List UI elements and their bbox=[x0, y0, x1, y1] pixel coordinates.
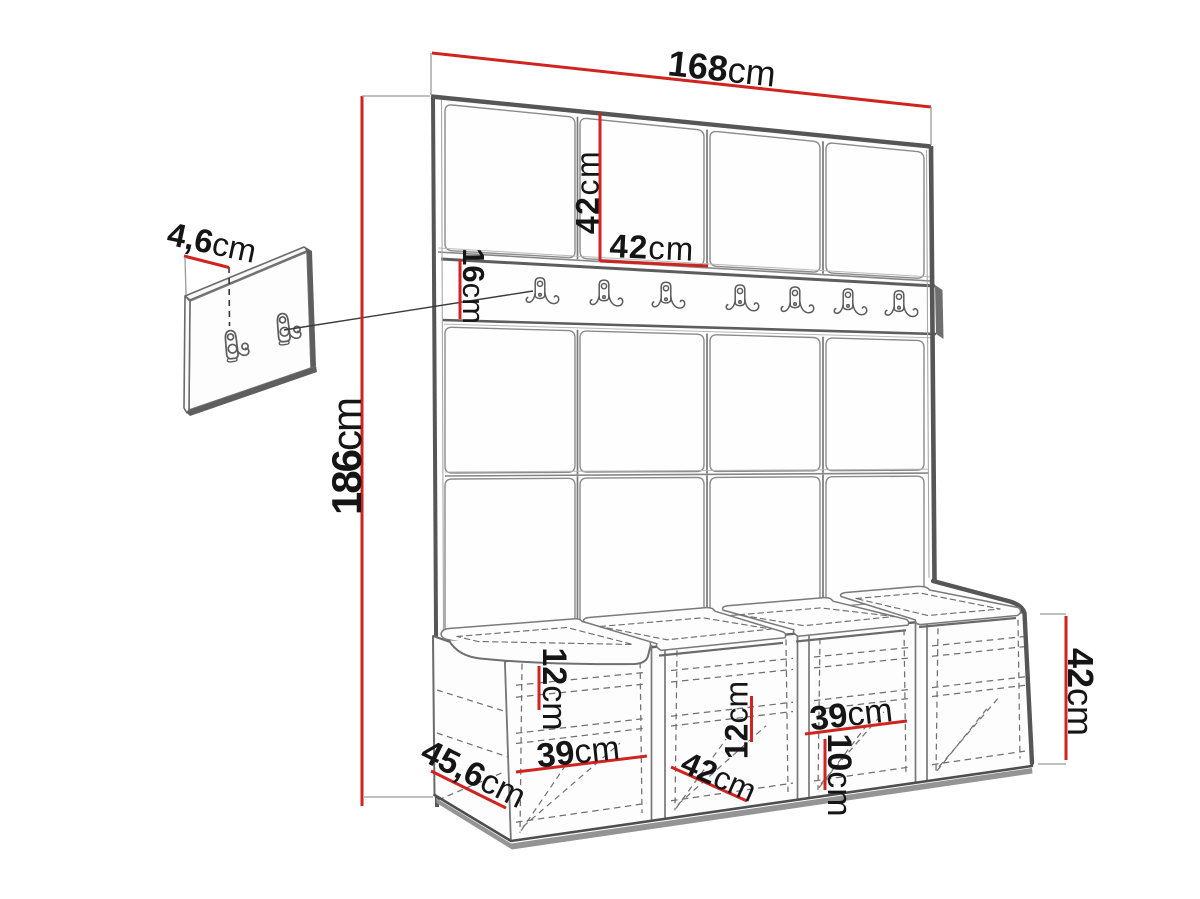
svg-text:16cm: 16cm bbox=[456, 248, 491, 324]
svg-text:186cm: 186cm bbox=[323, 399, 370, 515]
svg-text:42cm: 42cm bbox=[570, 150, 606, 234]
svg-text:42cm: 42cm bbox=[609, 227, 695, 268]
svg-text:42cm: 42cm bbox=[1060, 648, 1101, 736]
svg-text:12cm: 12cm bbox=[719, 681, 755, 759]
svg-text:10cm: 10cm bbox=[820, 733, 858, 816]
svg-text:12cm: 12cm bbox=[535, 647, 573, 730]
